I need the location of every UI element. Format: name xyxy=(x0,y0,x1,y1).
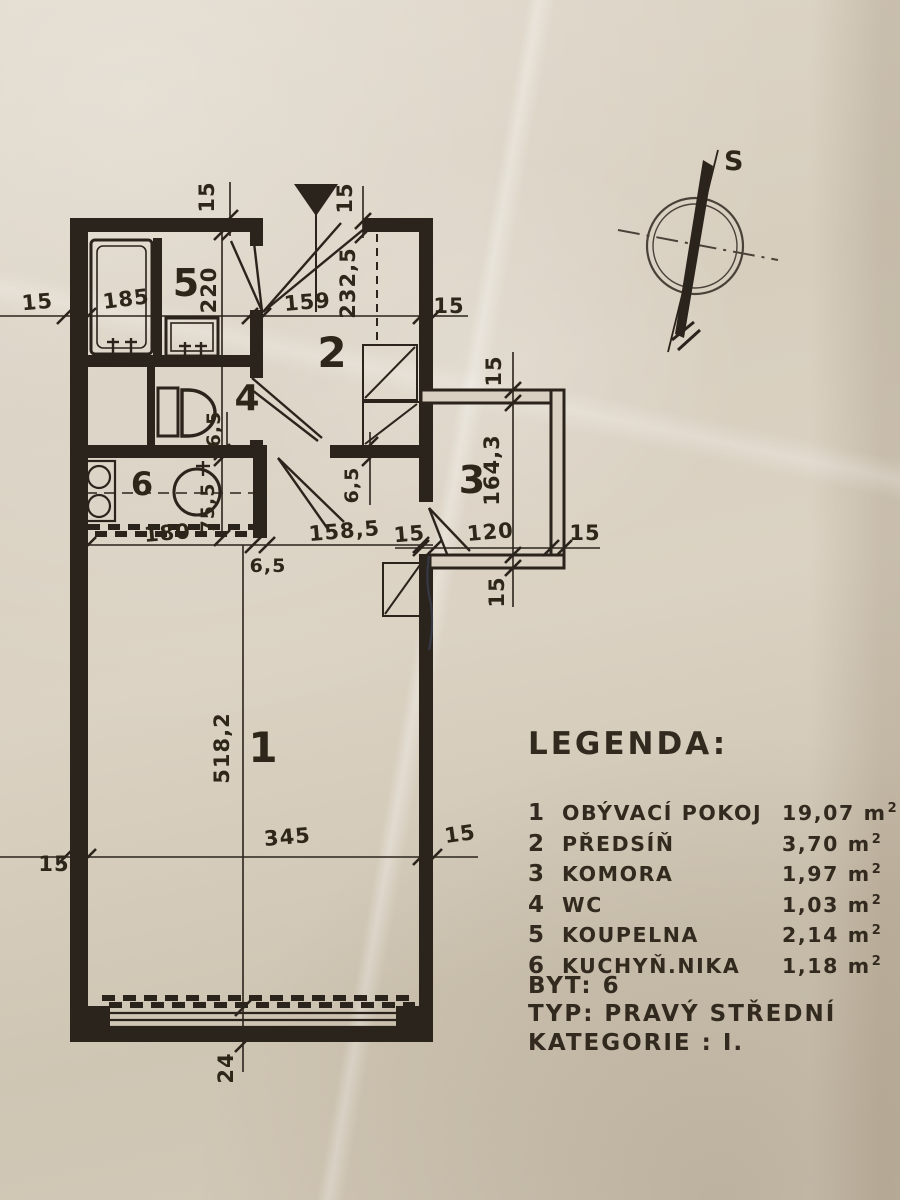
dim-label: 15 xyxy=(38,852,69,876)
compass: S xyxy=(618,146,778,352)
fixtures xyxy=(84,240,253,521)
byt-value: 6 xyxy=(603,973,621,999)
dimension-ticks xyxy=(57,210,572,1052)
dim-label: 518,2 xyxy=(210,712,234,783)
legend-row: 3 KOMORA 1,97 m2 xyxy=(528,861,890,887)
dim-label: 6,5 xyxy=(250,555,287,577)
room-number-living: 1 xyxy=(248,723,277,772)
legend-room-number: 2 xyxy=(528,831,562,857)
window-and-sill xyxy=(88,527,420,1027)
legend-room-area: 3,70 m2 xyxy=(782,832,890,856)
dim-label: 15 xyxy=(482,355,506,386)
legend-room-area: 2,14 m2 xyxy=(782,923,890,947)
legend-room-number: 1 xyxy=(528,800,562,826)
dim-label: 232,5 xyxy=(336,247,360,318)
apartment-info: BYT:6 TYP:PRAVÝ STŘEDNÍ KATEGORIE :I. xyxy=(528,972,846,1057)
compass-north-label: S xyxy=(724,146,743,177)
legend-room-area: 19,07 m2 xyxy=(782,801,890,825)
stove xyxy=(84,461,115,521)
legend-rows: 1 OBÝVACÍ POKOJ 19,07 m2 2 PŘEDSÍŇ 3,70 … xyxy=(528,800,890,979)
dim-label: 180 xyxy=(143,519,192,547)
legend-title: LEGENDA: xyxy=(528,726,890,762)
legend-room-name: PŘEDSÍŇ xyxy=(562,832,782,856)
typ-label: TYP: xyxy=(528,1001,594,1027)
entry-arrow-icon xyxy=(294,184,338,216)
dim-label: 220 xyxy=(197,267,221,314)
dim-label: 15 xyxy=(21,289,54,316)
tub-taps-icon xyxy=(107,338,137,353)
dim-label: 158,5 xyxy=(308,516,381,546)
dim-label: 159 xyxy=(283,288,332,316)
dim-label: 75,5 xyxy=(197,483,219,534)
dim-label: 15 xyxy=(443,820,477,848)
dim-label: 120 xyxy=(466,518,515,546)
dim-label: 15 xyxy=(195,181,219,212)
walls xyxy=(70,218,433,1042)
dim-label: 15 xyxy=(569,521,600,545)
room-number-kitchen: 6 xyxy=(131,465,153,503)
legend-room-number: 5 xyxy=(528,922,562,948)
room-number-bathroom: 5 xyxy=(173,261,199,305)
typ-value: PRAVÝ STŘEDNÍ xyxy=(604,1001,836,1027)
dim-label: 345 xyxy=(263,823,312,851)
byt-label: BYT: xyxy=(528,973,593,999)
dim-label: 6,5 xyxy=(341,467,363,504)
dim-label: 185 xyxy=(101,284,150,314)
legend-room-name: KOUPELNA xyxy=(562,923,782,947)
legend-room-name: OBÝVACÍ POKOJ xyxy=(562,801,782,825)
room-number-storage: 3 xyxy=(459,458,485,502)
compass-needle-icon xyxy=(675,160,713,338)
legend-room-area: 1,97 m2 xyxy=(782,862,890,886)
room-number-hall: 2 xyxy=(317,328,346,377)
legend-row: 1 OBÝVACÍ POKOJ 19,07 m2 xyxy=(528,800,890,826)
legend-room-number: 3 xyxy=(528,861,562,887)
scanned-floor-plan-sheet: 15 185 159 15 15 15 232,5 220 6,5 6,5 15… xyxy=(0,0,900,1200)
legend: LEGENDA: 1 OBÝVACÍ POKOJ 19,07 m2 2 PŘED… xyxy=(528,726,890,979)
legend-room-name: KOMORA xyxy=(562,862,782,886)
kategorie-label: KATEGORIE : xyxy=(528,1030,713,1056)
legend-row: 4 WC 1,03 m2 xyxy=(528,892,890,918)
dim-label: 15 xyxy=(393,521,426,548)
room-number-wc: 4 xyxy=(234,378,259,419)
dim-label: 15 xyxy=(485,576,509,607)
kategorie-value: I. xyxy=(723,1030,744,1056)
dim-label: 6,5 xyxy=(203,411,225,448)
legend-room-area: 1,03 m2 xyxy=(782,893,890,917)
dim-label: 15 xyxy=(433,294,464,318)
legend-room-number: 4 xyxy=(528,892,562,918)
legend-row: 2 PŘEDSÍŇ 3,70 m2 xyxy=(528,831,890,857)
dim-label: 24 xyxy=(214,1052,238,1083)
legend-row: 5 KOUPELNA 2,14 m2 xyxy=(528,922,890,948)
dim-label: 15 xyxy=(333,182,357,213)
legend-room-name: WC xyxy=(562,893,782,917)
